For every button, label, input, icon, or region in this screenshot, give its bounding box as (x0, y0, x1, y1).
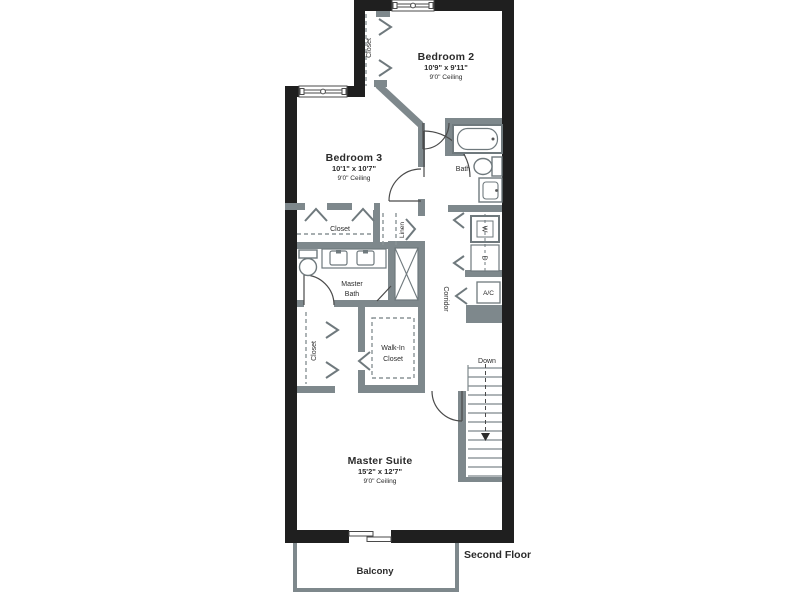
wall-masterbath-south-east (334, 300, 418, 307)
sink-icon-bath (479, 178, 502, 202)
wall-right-main (502, 0, 514, 543)
wall-wic-west-bottom (358, 370, 365, 387)
bifold-icon-b2closet-2 (379, 60, 391, 76)
wall-bottom-left (285, 530, 349, 543)
toilet-icon-bath (474, 157, 502, 176)
wall-stairs-bottom (458, 477, 502, 482)
bedroom2-ceiling: 9'0" Ceiling (430, 74, 463, 81)
door-chevrons (305, 19, 467, 378)
bifold-icon-dryer (454, 256, 464, 270)
wall-bath-north (445, 118, 502, 125)
bifold-icon-b2closet-1 (379, 19, 391, 35)
bath-label: Bath (456, 166, 471, 173)
walk-in-closet-label-line2: Closet (383, 356, 403, 363)
linen-label: Linen (399, 222, 406, 238)
master-suite-dims: 15'2" x 12'7" (358, 467, 402, 476)
wall-mastersuite-north-left (297, 386, 335, 393)
bathtub-icon (453, 125, 502, 153)
bedroom2-dims: 10'9" x 9'11" (424, 63, 468, 72)
door-swing-master-suite (432, 391, 462, 421)
floor-title: Second Floor (464, 549, 531, 561)
stairs-down-label: Down (478, 358, 496, 365)
bedroom3-ceiling: 9'0" Ceiling (338, 175, 371, 182)
wall-masterbath-south-west (297, 300, 304, 307)
bedroom3-name: Bedroom 3 (326, 152, 383, 164)
door-swing-bedroom3 (389, 169, 421, 201)
balcony-wall-bottom (293, 588, 459, 592)
balcony-label: Balcony (357, 566, 395, 577)
bedroom2-name: Bedroom 2 (418, 51, 475, 63)
door-icon-linen (406, 219, 415, 240)
bifold-icon-mastercloset-1 (326, 322, 338, 338)
wall-diagonal-bedroom2 (378, 85, 421, 125)
wall-chase-block (466, 305, 502, 323)
wall-bath-south (448, 205, 502, 212)
floor-plan-drawing: Bedroom 2 10'9" x 9'11" 9'0" Ceiling Bed… (0, 0, 800, 600)
floor-plan-page: Bedroom 2 10'9" x 9'11" 9'0" Ceiling Bed… (0, 0, 800, 600)
door-icon-ac (456, 288, 467, 304)
stairs (468, 364, 502, 476)
vanity-icon-master-bath (322, 249, 386, 268)
wall-b3closet-north-3 (374, 203, 380, 210)
balcony-wall-right (455, 543, 459, 592)
ac-label: A/C (483, 290, 494, 297)
master-closet-label: Closet (311, 341, 318, 361)
wall-b3closet-north-1 (285, 203, 305, 210)
wall-top-bedroom3-right (347, 86, 365, 97)
corridor-label: Corridor (442, 286, 449, 312)
dryer-label: D (481, 255, 488, 260)
master-bath-label-line2: Bath (345, 291, 360, 298)
bedroom3-closet-label: Closet (330, 226, 350, 233)
wall-wic-west-top (358, 307, 365, 352)
door-icon-walkin (359, 352, 370, 370)
toilet-icon-master-bath (299, 250, 317, 276)
wall-left-bedroom2 (354, 0, 365, 97)
bedroom2-closet-label: Closet (366, 38, 373, 58)
wall-bottom-right (391, 530, 514, 543)
bifold-icon-b3closet-2 (352, 209, 374, 221)
master-suite-ceiling: 9'0" Ceiling (364, 478, 397, 485)
bifold-icon-b3closet-1 (305, 209, 327, 221)
master-bath-label-line1: Master (341, 281, 363, 288)
stairs-down-arrow-icon (481, 364, 490, 441)
bifold-icon-mastercloset-2 (326, 362, 338, 378)
walk-in-closet-label-line1: Walk-In (381, 345, 405, 352)
wall-shower-left (388, 243, 395, 307)
bedroom3-dims: 10'1" x 10'7" (332, 164, 376, 173)
sliding-door-icon-balcony (349, 530, 391, 543)
bifold-icon-washer (454, 213, 464, 228)
wall-left-main (285, 86, 297, 543)
shower-icon (395, 248, 418, 300)
wall-b2closet-stub-top (376, 11, 390, 17)
door-swing-master-bath (304, 275, 334, 305)
balcony-wall-left (293, 543, 297, 592)
window-icon-bedroom2 (392, 0, 434, 11)
master-suite-name: Master Suite (348, 455, 413, 467)
washer-label: W (481, 226, 488, 233)
wall-b3closet-north-2 (327, 203, 352, 210)
wall-spine-lower (418, 243, 425, 393)
wall-wic-south (358, 385, 425, 393)
window-icon-bedroom3 (299, 86, 347, 97)
interior-walls (285, 11, 502, 482)
